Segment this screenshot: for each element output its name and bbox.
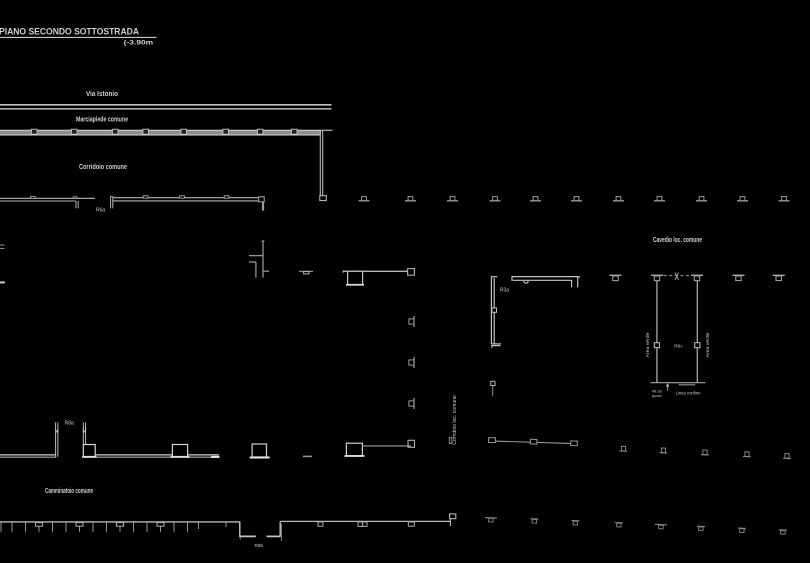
svg-text:Camminatoio comune: Camminatoio comune xyxy=(45,488,93,495)
svg-text:Marciapiede comune: Marciapiede comune xyxy=(76,116,128,123)
svg-text:R8b: R8b xyxy=(255,543,264,548)
svg-text:R6a: R6a xyxy=(96,208,105,214)
svg-text:Corridoio comune: Corridoio comune xyxy=(79,164,127,171)
svg-text:Cavedio loc. comune: Cavedio loc. comune xyxy=(653,237,702,244)
svg-text:Alt.6a: Alt.6a xyxy=(652,390,663,394)
svg-text:Area verde: Area verde xyxy=(645,332,650,358)
svg-text:R6c: R6c xyxy=(674,343,683,349)
svg-text:(-3.90m: (-3.90m xyxy=(124,39,154,46)
svg-text:PIANO SECONDO SOTTOSTRADA: PIANO SECONDO SOTTOSTRADA xyxy=(0,26,139,37)
svg-text:Corridoio loc. comune: Corridoio loc. comune xyxy=(452,395,458,445)
svg-text:Via Istonio: Via Istonio xyxy=(86,91,118,98)
svg-text:quota: quota xyxy=(652,394,662,398)
svg-text:R8a: R8a xyxy=(65,420,74,426)
svg-text:R3a: R3a xyxy=(500,287,509,293)
svg-text:Linea confine: Linea confine xyxy=(676,390,702,395)
svg-text:Area verde: Area verde xyxy=(705,332,710,358)
